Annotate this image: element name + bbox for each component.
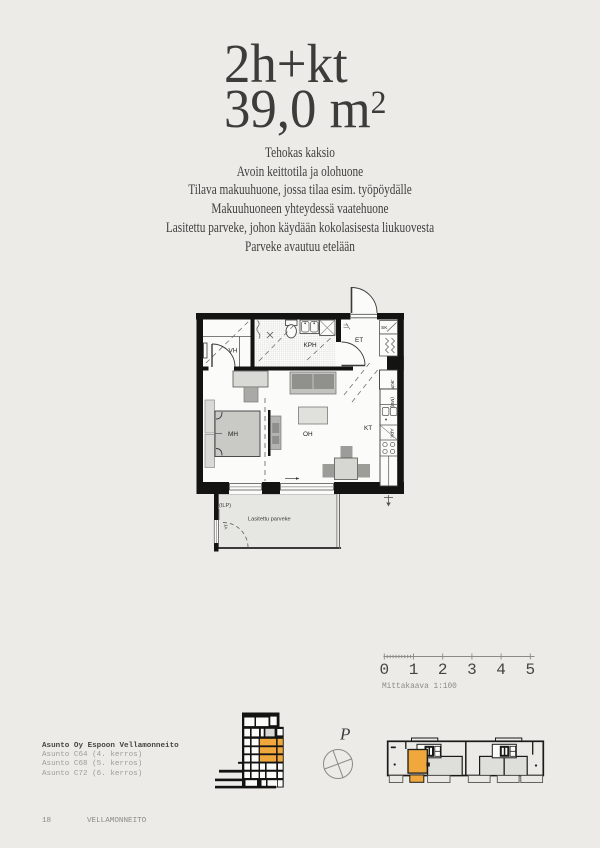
svg-text:(ILP): (ILP) [219,503,231,509]
svg-text:KPH: KPH [304,342,318,349]
svg-text:Lasitettu parveke: Lasitettu parveke [248,517,291,523]
svg-text:MH: MH [228,431,238,438]
svg-text:(MU): (MU) [389,397,395,408]
svg-text:KT: KT [364,425,372,432]
svg-text:SK: SK [381,325,388,331]
svg-text:VH: VH [229,348,238,355]
svg-text:ET: ET [355,337,363,344]
svg-text:APK: APK [389,429,395,439]
svg-text:1A: 1A [224,524,229,531]
svg-text:P: P [339,725,350,744]
svg-text:OH: OH [303,431,313,438]
